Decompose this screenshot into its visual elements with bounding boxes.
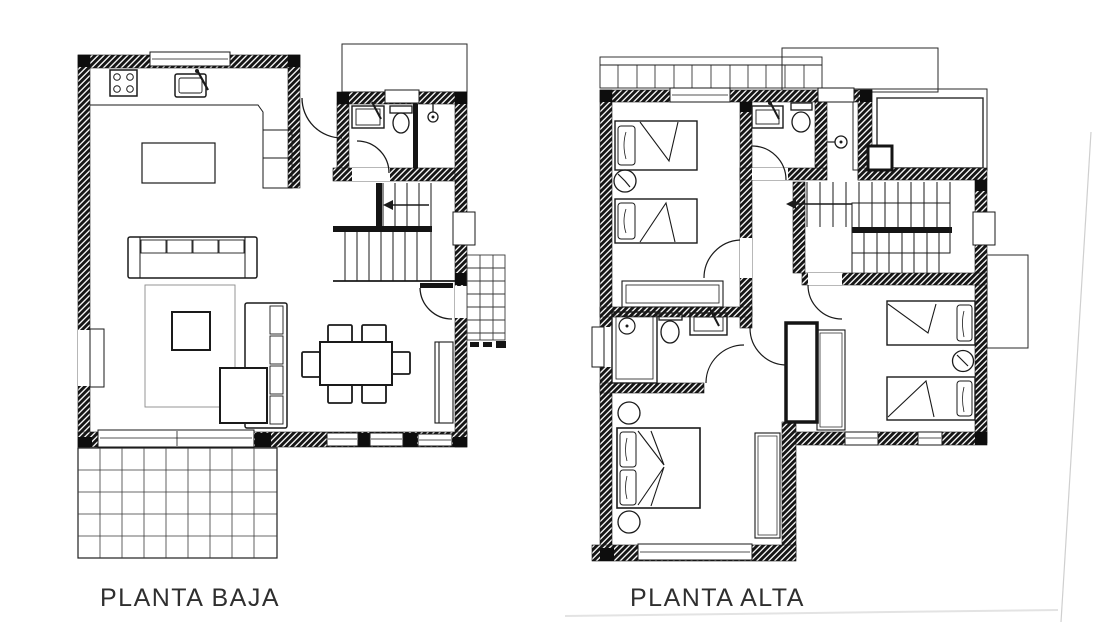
planta-baja-plan [78,44,506,558]
planta-baja-label: PLANTA BAJA [100,584,280,613]
toilet [390,106,412,133]
coffee-table [172,312,210,350]
big-window [98,430,254,447]
entrance-door-arc [420,288,452,319]
floor-plan-page: PLANTA BAJA PLANTA ALTA [0,0,1110,623]
shower-head [827,136,847,148]
bathroom-top [752,101,847,148]
planta-alta-plan [592,48,1028,561]
side-window-right [453,212,475,245]
kitchen-counter [90,105,263,130]
wardrobe [755,433,780,538]
sideboard [435,342,453,423]
nightstand [614,170,636,192]
cooktop [110,70,137,96]
single-bed-1 [887,301,975,345]
wardrobe [622,281,723,307]
toilet [791,103,812,132]
twin-bedroom-left [614,121,723,307]
stair-landing-bar [333,226,432,232]
stairs-direction-arrow [786,199,796,209]
hall-closet [786,323,817,422]
kitchen-island [142,143,215,183]
kitchen [90,69,292,188]
master-corridor-door-arc [750,328,787,365]
living-room [128,237,287,428]
bathroom-window [385,90,419,103]
dining-area [302,325,453,423]
top-window-2 [818,88,854,102]
side-window-left [90,329,104,387]
stairs-direction-arrow [383,200,393,210]
dining-table [320,342,392,385]
single-bed-2 [887,377,975,420]
washbasin [690,309,727,335]
master-bedroom [617,402,780,538]
double-bed [617,428,700,508]
entrance-door-leaf [420,283,453,288]
terrace [78,448,277,558]
single-bed-1 [615,121,697,170]
bathroom-left [612,309,727,383]
kitchen-sink [175,69,208,97]
round-side-table-1 [618,402,640,424]
toilet [659,313,682,343]
kitchen-passage-arc [302,98,342,138]
stair-landing-bar [852,227,952,233]
left-window [592,327,604,367]
wardrobe [817,330,845,430]
planta-alta-label: PLANTA ALTA [630,584,805,613]
door-swings [704,146,842,383]
bathroom-left-door-arc [706,345,744,383]
washbasin [752,101,783,128]
porch-edge-dashes [470,341,506,348]
bathroom [352,102,438,133]
duct-box [868,146,892,170]
roof-overhang-outline [342,44,467,92]
bathroom-divider-wall [413,104,418,168]
stair-closet-wall [376,183,382,227]
shower-stall [612,312,657,383]
sofa [128,237,257,278]
single-bed-2 [615,199,697,243]
side-balcony [987,255,1028,348]
ottoman-table [220,368,267,423]
shower [428,103,438,122]
floor-plan-drawing [0,0,1110,623]
kitchen-cabinet-column [263,130,292,188]
nightstand [953,351,974,372]
stair-window [973,212,995,245]
twin-bedroom-right [817,301,975,430]
washbasin [352,102,384,128]
bedroom-left-door-arc [704,240,740,278]
bedroom-right-door-arc [808,285,842,319]
roof-overhang-top [782,48,938,92]
round-side-table-2 [618,511,640,533]
balcony-railing-grid [600,57,822,88]
entry-porch [467,255,506,348]
